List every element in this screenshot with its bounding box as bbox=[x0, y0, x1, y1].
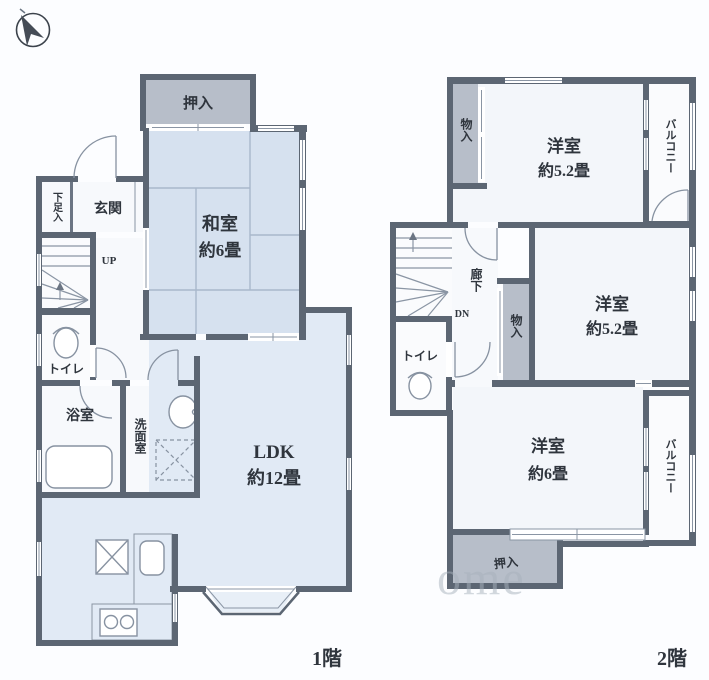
toilet-1f-icon bbox=[54, 328, 78, 358]
toilet-2f-label: トイレ bbox=[402, 349, 438, 363]
oshiire-1f-label: 押入 bbox=[183, 94, 213, 112]
floor1-title: 1階 bbox=[312, 647, 342, 670]
bath-label: 浴室 bbox=[66, 407, 94, 424]
bathtub-icon bbox=[46, 446, 112, 488]
kitchen-sink-icon bbox=[96, 540, 128, 574]
room-bottom-size-label: 約6畳 bbox=[528, 464, 568, 483]
washitsu-size-label: 約6畳 bbox=[199, 240, 242, 260]
storage-mid-label: 物入 bbox=[509, 313, 523, 339]
room-mid-size-label: 約5.2畳 bbox=[586, 319, 638, 338]
genkan-label: 玄関 bbox=[94, 200, 122, 217]
floorplan-page: 押入 和室 約6畳 玄関 下足入 UP トイレ 浴室 洗面室 LDK 約12畳 bbox=[0, 0, 709, 680]
storage-top-label: 物入 bbox=[459, 117, 473, 143]
compass-north-icon bbox=[17, 9, 50, 47]
floor1-plan: 押入 和室 約6畳 玄関 下足入 UP トイレ 浴室 洗面室 LDK 約12畳 bbox=[36, 74, 352, 646]
stove-icon bbox=[100, 609, 137, 636]
getabako-label: 下足入 bbox=[51, 192, 63, 223]
ldk-size-label: 約12畳 bbox=[247, 467, 301, 488]
corridor-label: 廊下 bbox=[469, 267, 483, 293]
ldk-label: LDK bbox=[253, 442, 294, 463]
room-top-size-label: 約5.2畳 bbox=[538, 161, 590, 180]
balcony-bottom-label: バルコニー bbox=[664, 438, 677, 493]
washroom-label: 洗面室 bbox=[133, 417, 147, 455]
balcony-top-label: バルコニー bbox=[664, 118, 677, 173]
floor2-plan: 物入 洋室 約5.2畳 バルコニー 廊下 DN 物入 洋室 約5.2畳 トイレ … bbox=[390, 77, 696, 589]
room-top-label: 洋室 bbox=[547, 136, 581, 156]
floorplan-drawing: 押入 和室 約6畳 玄関 下足入 UP トイレ 浴室 洗面室 LDK 約12畳 bbox=[0, 0, 709, 680]
room-bottom-label: 洋室 bbox=[531, 436, 565, 456]
floor2-title: 2階 bbox=[657, 647, 687, 670]
room-mid-label: 洋室 bbox=[595, 294, 629, 314]
toilet-1f-label: トイレ bbox=[48, 362, 84, 376]
toilet-2f-icon bbox=[409, 373, 431, 399]
washitsu-label: 和室 bbox=[202, 213, 238, 234]
watermark: ome bbox=[437, 552, 526, 605]
room-bottom-area bbox=[453, 387, 643, 535]
stairs-up-label: UP bbox=[102, 255, 117, 267]
stairs-dn-label: DN bbox=[455, 309, 470, 320]
